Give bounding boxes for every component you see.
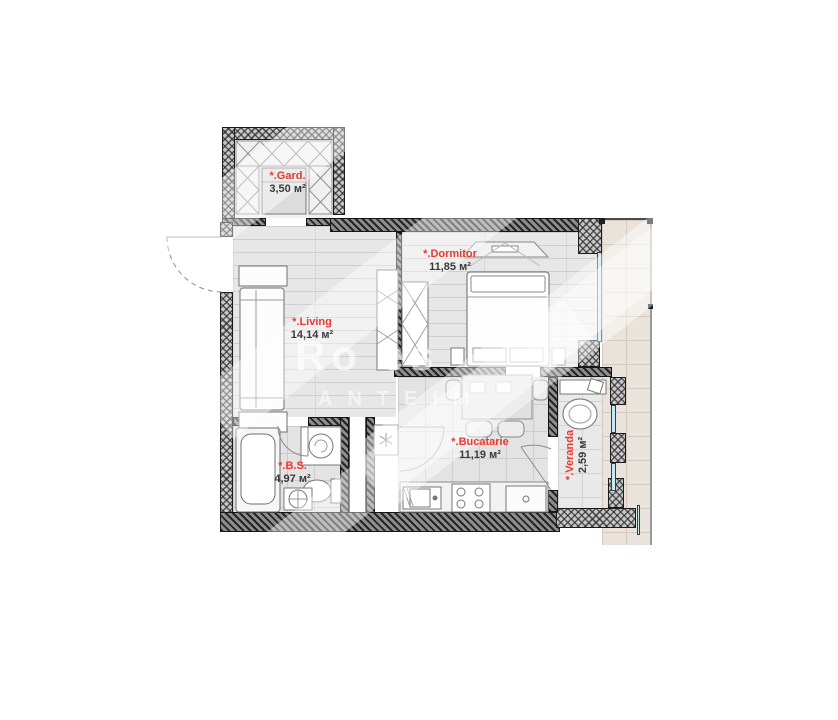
room-area: 11,85 м² [400, 261, 500, 274]
door-arc-entrance [167, 237, 222, 292]
room-area: 14,14 м² [262, 329, 362, 342]
room-label-dormitor: *.Dormitor 11,85 м² [400, 248, 500, 274]
room-label-veranda: *.Veranda 2,59 м² [564, 410, 592, 500]
room-area: 11,19 м² [420, 449, 540, 462]
room-name: *.Living [262, 316, 362, 329]
sofa [239, 266, 287, 432]
boiler-unit [374, 425, 398, 455]
room-name: *.Veranda [564, 410, 577, 500]
room-area: 4,97 м² [250, 473, 335, 486]
room-name: *.Dormitor [400, 248, 500, 261]
balcony-posts [599, 218, 653, 309]
room-name: *.Gard. [240, 170, 335, 183]
room-label-living: *.Living 14,14 м² [262, 316, 362, 342]
floor-plan: Ro es ANTEIM *.Gard. 3,50 м² *.Dormitor … [0, 0, 838, 720]
room-area: 2,59 м² [577, 410, 590, 500]
room-name: *.B.S. [250, 460, 335, 473]
room-name: *.Bucatarie [420, 436, 540, 449]
tv-unit-living [377, 270, 398, 370]
room-label-bs: *.B.S. 4,97 м² [250, 460, 335, 486]
room-label-bucatarie: *.Bucatarie 11,19 м² [420, 436, 540, 462]
bathroom-sink [284, 488, 312, 510]
dining-table [446, 375, 548, 437]
veranda-shelf [560, 378, 606, 394]
room-label-gard: *.Gard. 3,50 м² [240, 170, 335, 196]
stove [452, 484, 490, 512]
kitchen-sink [403, 487, 441, 509]
fridge [506, 486, 546, 512]
furniture-layer [0, 0, 838, 720]
wardrobe-dormitor [402, 282, 428, 366]
room-area: 3,50 м² [240, 183, 335, 196]
bed [467, 272, 549, 366]
